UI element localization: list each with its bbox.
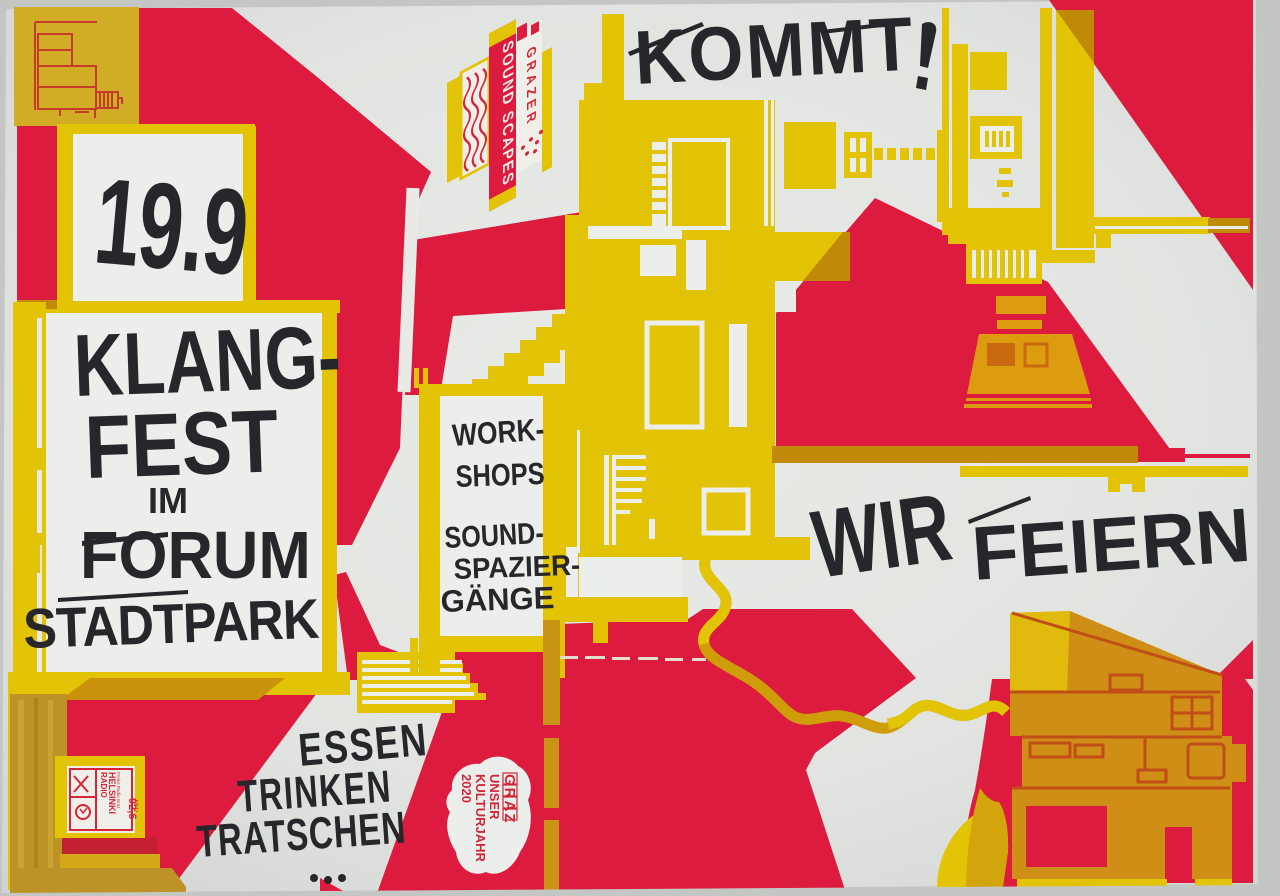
svg-text:GRAZ: GRAZ [501,774,518,825]
svg-text:2020: 2020 [459,774,474,803]
svg-text:FORUM: FORUM [80,517,311,592]
svg-text:SOUND-: SOUND- [444,516,545,555]
svg-text:SHOPS: SHOPS [455,457,545,495]
svg-text:SPAZIER-: SPAZIER- [453,548,581,585]
svg-text:SOUND SCAPES: SOUND SCAPES [499,37,516,190]
svg-text:KOMMT: KOMMT [632,1,917,101]
svg-text:WIR: WIR [806,473,958,598]
svg-text:IM: IM [148,480,188,521]
svg-text:UNSER: UNSER [487,774,502,820]
svg-text:MHz: MHz [132,800,138,812]
svg-text:RADIO: RADIO [99,772,108,798]
svg-text:GÄNGE: GÄNGE [440,580,555,619]
svg-text:GRAZER: GRAZER [524,43,539,130]
svg-text:19.9: 19.9 [90,151,253,301]
svg-text:WORK-: WORK- [451,413,545,454]
svg-text:Freies Radio Graz: Freies Radio Graz [116,772,121,809]
svg-text:KULTURJAHR: KULTURJAHR [473,774,488,862]
